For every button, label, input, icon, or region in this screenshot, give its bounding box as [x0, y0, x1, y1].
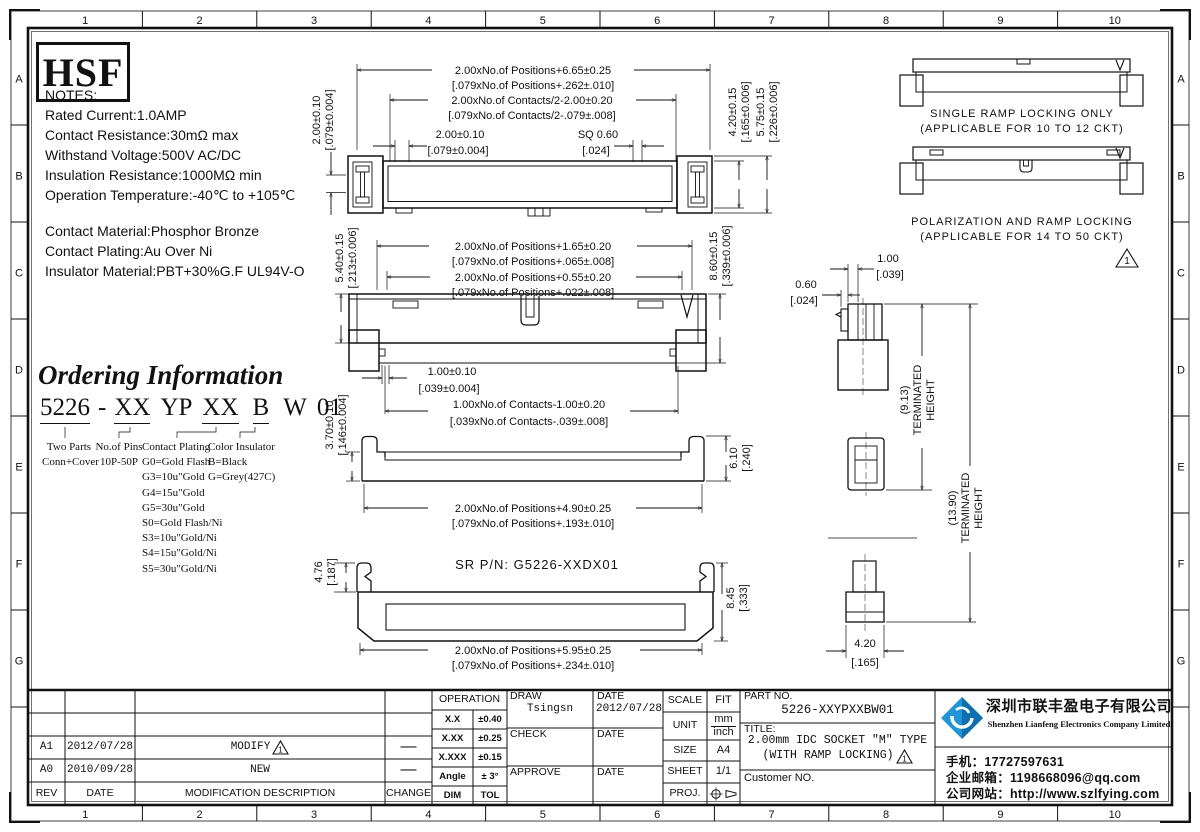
ruler-row: E: [15, 462, 22, 474]
ruler-col: 6: [654, 809, 660, 821]
dim-tv-pos-mm: 2.00xNo.of Positions+6.65±0.25: [455, 65, 611, 77]
ruler-col: 2: [197, 15, 203, 27]
drawing-title-line2-text: (WITH RAMP LOCKING): [762, 750, 893, 762]
dim-label: DIM: [432, 786, 473, 805]
approve-date-label: DATE: [597, 767, 657, 779]
company-logo: [938, 694, 986, 742]
drawing-title-line2: (WITH RAMP LOCKING) 1: [740, 748, 935, 764]
customer-no-label: Customer NO.: [744, 772, 884, 786]
revision-mark: 1: [278, 745, 283, 755]
dim-tv-sq-mm: SQ 0.60: [578, 129, 618, 141]
dim-fv-pitch-in: [.039±0.004]: [418, 383, 479, 395]
dim-tv-pitch-in: [.079±0.004]: [427, 145, 488, 157]
code-yp: YP: [160, 394, 192, 422]
ruler-col: 10: [1109, 809, 1121, 821]
ruler-row: F: [16, 559, 23, 571]
ruler-row: C: [15, 268, 23, 280]
note-line: Rated Current:1.0AMP: [45, 105, 295, 125]
ruler-letters-left: A B C D E F G: [15, 74, 24, 668]
sr-part-number-label: SR P/N: G5226-XXDX01: [455, 557, 619, 572]
part-number: 5226-XXYPXXBW01: [740, 702, 935, 720]
dim-tv-cont-mm: 2.00xNo.of Contacts/2-2.00±0.20: [451, 95, 612, 107]
drawing-title-line1: 2.00mm IDC SOCKET "M" TYPE: [740, 734, 935, 748]
dim-sv-height2: HEIGHT: [973, 487, 985, 529]
operation-header: OPERATION: [432, 690, 507, 710]
revision-triangle-icon: 1: [896, 749, 913, 764]
plating-option: S5=30u"Gold/Ni: [142, 562, 222, 577]
rev-header: REV: [28, 782, 65, 805]
ruler-row: D: [1177, 365, 1185, 377]
check-date-label: DATE: [597, 729, 657, 741]
ruler-numbers-bottom: 1 2 3 4 5 6 7 8 9 10: [82, 809, 1121, 821]
dim-sv-p2-in: [.024]: [790, 295, 818, 307]
strain-relief-view: SR P/N: G5226-XXDX01 4.76 [.187] 8.45 [.…: [313, 557, 750, 672]
notes-title: NOTES:: [45, 85, 295, 105]
dim-fv-h1-mm: 5.40±0.15: [334, 234, 346, 283]
notes-block: NOTES: Rated Current:1.0AMP Contact Resi…: [45, 85, 295, 205]
polarization-caption-2: (APPLICABLE FOR 14 TO 50 CKT): [920, 231, 1123, 243]
plating-option: S3=10u"Gold/Ni: [142, 531, 222, 546]
ruler-row: D: [15, 365, 23, 377]
ruler-col: 2: [197, 809, 203, 821]
ruler-row: A: [1177, 74, 1185, 86]
dim-bv-h-in: [.240]: [741, 444, 753, 472]
ruler-row: A: [15, 74, 23, 86]
scale-label: SCALE: [663, 690, 707, 712]
no-of-pins-label: No.of Pins: [94, 440, 144, 455]
plating-option: S0=Gold Flash/Ni: [142, 516, 222, 531]
ruler-row: F: [1178, 559, 1185, 571]
dim-sv-term2: TERMINATED: [960, 473, 972, 544]
rev-a0-date: 2010/09/28: [65, 759, 135, 782]
modification-header: MODIFICATION DESCRIPTION: [135, 782, 385, 805]
company-website: 公司网站：http://www.szlfying.com: [946, 783, 1160, 802]
dim-sv-p2-mm: 0.60: [795, 279, 816, 291]
tol-label: TOL: [473, 786, 507, 805]
tol-row-value: ±0.25: [473, 729, 507, 748]
ruler-row: G: [1177, 656, 1186, 668]
company-name-en: Shenzhen Lianfeng Electronics Company Li…: [986, 719, 1172, 731]
materials-block: Contact Material:Phosphor Bronze Contact…: [45, 221, 305, 281]
ruler-row: G: [15, 656, 24, 668]
dim-sv-w-mm: 4.20: [854, 638, 875, 650]
drawing-sheet: 1 2 3 4 5 6 7 8 9 10 1 2 3 4 5 6 7 8 9 1…: [0, 0, 1200, 832]
ordering-code: 5226 - XX YP XX B W 01: [40, 394, 342, 424]
dim-fv-cont-mm: 1.00xNo.of Contacts-1.00±0.20: [453, 399, 605, 411]
pins-range-label: 10P-50P: [94, 455, 144, 470]
tol-row-label: Angle: [432, 767, 473, 786]
dim-bv-h-mm: 6.10: [728, 447, 740, 468]
ruler-row: B: [1177, 171, 1184, 183]
dim-tv-pitch-mm: 2.00±0.10: [436, 129, 485, 141]
draw-date: 2012/07/28: [596, 702, 663, 718]
approve-label: APPROVE: [510, 767, 590, 779]
dim-fv-pos1-mm: 2.00xNo.of Positions+1.65±0.20: [455, 241, 611, 253]
dim-fv-pos1-in: [.079xNo.of Positions+.065±.008]: [452, 256, 614, 268]
dim-sr-h2-mm: 8.45: [725, 587, 737, 608]
dim-fv-pitch-mm: 1.00±0.10: [428, 366, 477, 378]
dim-sr-h1-in: [.187]: [326, 558, 338, 586]
revision-mark: 1: [902, 753, 907, 763]
note-line: Contact Resistance:30mΩ max: [45, 125, 295, 145]
material-line: Insulator Material:PBT+30%G.F UL94V-O: [45, 261, 305, 281]
check-label: CHECK: [510, 729, 590, 741]
rev-a1-date: 2012/07/28: [65, 736, 135, 759]
company-name-cn: 深圳市联丰盈电子有限公司: [988, 697, 1170, 717]
code-series: 5226: [40, 394, 90, 424]
unit-inch: inch: [713, 727, 733, 739]
code-pins: XX: [114, 394, 150, 424]
ruler-col: 9: [997, 809, 1003, 821]
single-ramp-caption-1: SINGLE RAMP LOCKING ONLY: [930, 108, 1114, 120]
dim-sr-h2-in: [.333]: [738, 584, 750, 612]
note-line: Operation Temperature:-40℃ to +105℃: [45, 185, 295, 205]
ruler-col: 7: [769, 809, 775, 821]
ruler-col: 8: [883, 15, 889, 27]
ruler-col: 10: [1109, 15, 1121, 27]
ruler-col: 5: [540, 809, 546, 821]
dim-tv-row-mm: 2.00±0.10: [311, 96, 323, 145]
rev-a1-desc: MODIFY 1: [135, 736, 385, 759]
side-views: 1.00 [.039] 0.60 [.024] 4.20 [.165] (9.1…: [790, 253, 985, 669]
top-view: 2.00xNo.of Positions+6.65±0.25 [.079xNo.…: [311, 64, 780, 216]
revision-triangle-icon: 1: [272, 740, 289, 755]
dim-sv-th2: (13.90): [947, 491, 959, 526]
ruler-col: 1: [82, 809, 88, 821]
dim-fv-pos2-mm: 2.00xNo.of Positions+0.55±0.20: [455, 272, 611, 284]
color-option: B=Black: [208, 455, 275, 470]
dim-sr-pos-mm: 2.00xNo.of Positions+5.95±0.25: [455, 645, 611, 657]
dim-fv-h2-in: [.339±0.006]: [721, 225, 733, 286]
ruler-row: E: [1177, 462, 1184, 474]
rev-a0-desc: NEW: [135, 759, 385, 782]
ruler-col: 1: [82, 15, 88, 27]
two-parts-label: Two Parts: [42, 440, 96, 455]
dim-sr-h1-mm: 4.76: [313, 561, 325, 582]
rev-a0-change: —: [385, 759, 432, 782]
plating-option: S4=15u"Gold/Ni: [142, 546, 222, 561]
color-insulator-label: Color Insulator: [208, 440, 275, 455]
rev-a1-change: —: [385, 736, 432, 759]
dim-tv-h1-mm: 4.20±0.15: [727, 88, 739, 137]
dim-bv-pos-in: [.079xNo.of Positions+.193±.010]: [452, 518, 614, 530]
ramp-locking-views: SINGLE RAMP LOCKING ONLY (APPLICABLE FOR…: [900, 59, 1143, 267]
code-plating: XX: [202, 394, 238, 424]
ruler-letters-right: A B C D E F G: [1177, 74, 1186, 668]
projection-label: PROJ.: [663, 783, 707, 805]
tol-row-value: ±0.40: [473, 710, 507, 729]
note-line: Withstand Voltage:500V AC/DC: [45, 145, 295, 165]
ordering-leader-lines: [65, 427, 255, 438]
unit-mm: mm: [711, 714, 735, 727]
dim-fv-cont-in: [.039xNo.of Contacts-.039±.008]: [450, 416, 608, 428]
dim-sv-p1-in: [.039]: [876, 269, 904, 281]
dim-sr-pos-in: [.079xNo.of Positions+.234±.010]: [452, 660, 614, 672]
dim-fv-h2-mm: 8.60±0.15: [708, 232, 720, 281]
ruler-col: 4: [425, 15, 431, 27]
ordering-col-color: Color Insulator B=Black G=Grey(427C): [208, 440, 275, 486]
sheet-value: 1/1: [707, 761, 740, 783]
dim-fv-pos2-in: [.079xNo.of Positions+.022±.008]: [452, 287, 614, 299]
tol-row-label: X.XXX: [432, 748, 473, 767]
plating-option: G5=30u"Gold: [142, 501, 222, 516]
dim-fv-h1-in: [.213±0.006]: [347, 227, 359, 288]
single-ramp-caption-2: (APPLICABLE FOR 10 TO 12 CKT): [920, 123, 1123, 135]
ordering-title: Ordering Information: [38, 360, 283, 391]
size-label: SIZE: [663, 740, 707, 761]
dim-sv-w-in: [.165]: [851, 657, 879, 669]
rev-a1: A1: [28, 736, 65, 759]
polarization-caption-1: POLARIZATION AND RAMP LOCKING: [911, 216, 1133, 228]
dim-tv-cont-in: [.079xNo.of Contacts/2-.079±.008]: [448, 110, 615, 122]
dim-bv-pos-mm: 2.00xNo.of Positions+4.90±0.25: [455, 503, 611, 515]
ruler-col: 5: [540, 15, 546, 27]
unit-value: mm inch: [707, 712, 740, 740]
note-line: Insulation Resistance:1000MΩ min: [45, 165, 295, 185]
revision-mark: 1: [1124, 256, 1130, 267]
tol-row-value: ± 3°: [473, 767, 507, 786]
code-01: 01: [317, 394, 342, 422]
draw-name: Tsingsn: [507, 702, 593, 718]
dim-tv-row-in: [.079±0.004]: [324, 89, 336, 150]
ruler-col: 9: [997, 15, 1003, 27]
ordering-col-two-parts: Two Parts Conn+Cover: [42, 440, 96, 470]
dim-sv-height1: HEIGHT: [925, 379, 937, 421]
date-header: DATE: [65, 782, 135, 805]
sheet-label: SHEET: [663, 761, 707, 783]
rev-a0: A0: [28, 759, 65, 782]
dim-sv-p1-mm: 1.00: [877, 253, 898, 265]
dim-sv-term1: TERMINATED: [912, 365, 924, 436]
ruler-numbers-top: 1 2 3 4 5 6 7 8 9 10: [82, 15, 1121, 27]
dim-tv-h2-mm: 5.75±0.15: [755, 88, 767, 137]
ruler-col: 3: [311, 809, 317, 821]
code-color: B: [253, 394, 270, 424]
material-line: Contact Plating:Au Over Ni: [45, 241, 305, 261]
unit-label: UNIT: [663, 712, 707, 740]
plating-option: G4=15u"Gold: [142, 486, 222, 501]
color-option: G=Grey(427C): [208, 470, 275, 485]
dim-tv-sq-in: [.024]: [582, 145, 610, 157]
tol-row-label: X.X: [432, 710, 473, 729]
dim-sv-th1: (9.13): [899, 386, 911, 415]
scale-value: FIT: [707, 690, 740, 712]
front-view: 2.00xNo.of Positions+1.65±0.20 [.079xNo.…: [324, 225, 733, 455]
ordering-col-pins: No.of Pins 10P-50P: [94, 440, 144, 470]
projection-symbol-icon: [707, 783, 740, 805]
ruler-row: C: [1177, 268, 1185, 280]
code-w: W: [283, 394, 307, 422]
dim-tv-h1-in: [.165±0.006]: [740, 81, 752, 142]
material-line: Contact Material:Phosphor Bronze: [45, 221, 305, 241]
tol-row-label: X.XX: [432, 729, 473, 748]
tol-row-value: ±0.15: [473, 748, 507, 767]
dim-tv-h2-in: [.226±0.006]: [768, 81, 780, 142]
change-header: CHANGE: [385, 782, 432, 805]
ruler-col: 7: [769, 15, 775, 27]
ruler-col: 4: [425, 809, 431, 821]
size-value: A4: [707, 740, 740, 761]
ruler-col: 8: [883, 809, 889, 821]
rev-a1-desc-text: MODIFY: [231, 742, 271, 754]
base-view: 6.10 [.240] 2.00xNo.of Positions+4.90±0.…: [346, 436, 753, 530]
revision-triangle-icon: 1: [1116, 249, 1138, 267]
code-dash: -: [98, 394, 106, 422]
ruler-row: B: [15, 171, 22, 183]
ruler-col: 6: [654, 15, 660, 27]
conn-cover-label: Conn+Cover: [42, 455, 96, 470]
dim-tv-pos-in: [.079xNo.of Positions+.262±.010]: [452, 80, 614, 92]
ruler-col: 3: [311, 15, 317, 27]
